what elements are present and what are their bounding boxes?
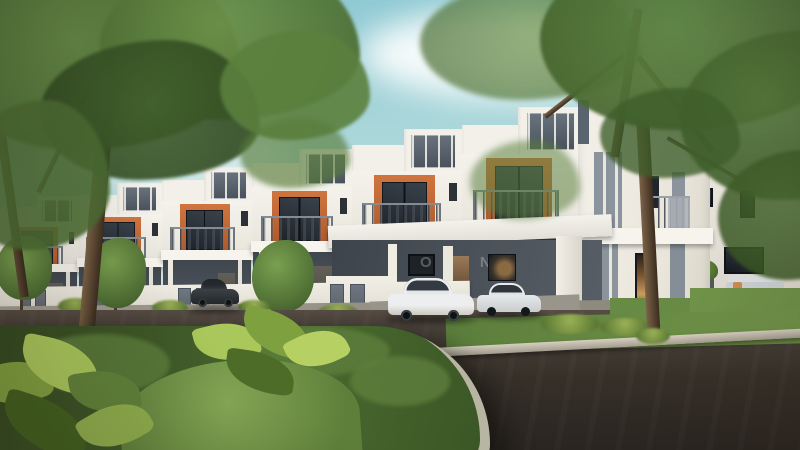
grass-tuft — [636, 328, 670, 344]
dark-sedan-car — [191, 277, 239, 315]
grass-tuft — [540, 314, 600, 334]
hedge-highlight — [350, 356, 450, 406]
tropical-plant — [0, 340, 160, 450]
window — [449, 183, 457, 201]
car-shadow — [385, 315, 477, 323]
lit-glass-door — [488, 254, 516, 281]
floor-slab — [161, 250, 254, 260]
white-sedan-car — [388, 274, 474, 322]
parapet-panel — [117, 183, 162, 215]
car-wheel — [448, 310, 459, 321]
window — [152, 223, 158, 236]
car-wheel — [521, 307, 530, 316]
car-wheel — [487, 307, 496, 316]
parapet-panel — [204, 167, 252, 203]
balcony-railing — [261, 216, 333, 243]
facade-dark-panel — [411, 135, 455, 168]
window — [241, 211, 247, 226]
car-wheel — [224, 298, 233, 307]
facade-dark-panel — [211, 172, 247, 199]
car-shadow — [475, 312, 543, 319]
parapet-panel — [404, 129, 462, 173]
architectural-rendering: O N — [0, 0, 800, 450]
facade-dark-panel — [123, 187, 157, 211]
balcony-railing — [170, 227, 235, 251]
window — [340, 198, 347, 214]
white-sedan-car — [477, 279, 541, 319]
tropical-plant — [195, 312, 355, 392]
car-wheel — [401, 310, 412, 321]
car-wheel — [198, 298, 207, 307]
railing-panel — [668, 198, 690, 230]
